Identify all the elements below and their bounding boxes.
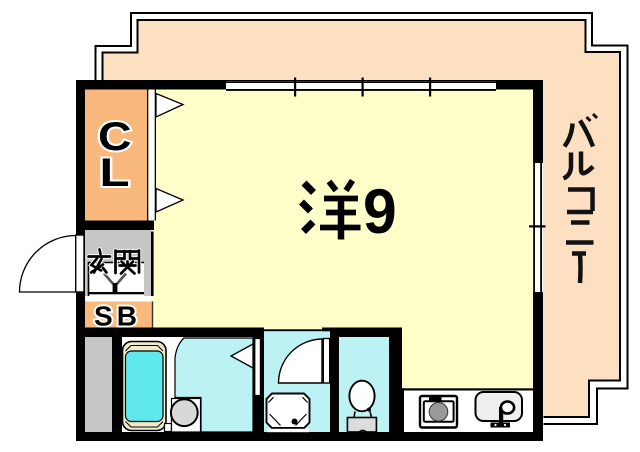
svg-text:SB: SB — [94, 301, 141, 332]
svg-text:L: L — [100, 149, 130, 194]
svg-text:9: 9 — [363, 177, 397, 247]
